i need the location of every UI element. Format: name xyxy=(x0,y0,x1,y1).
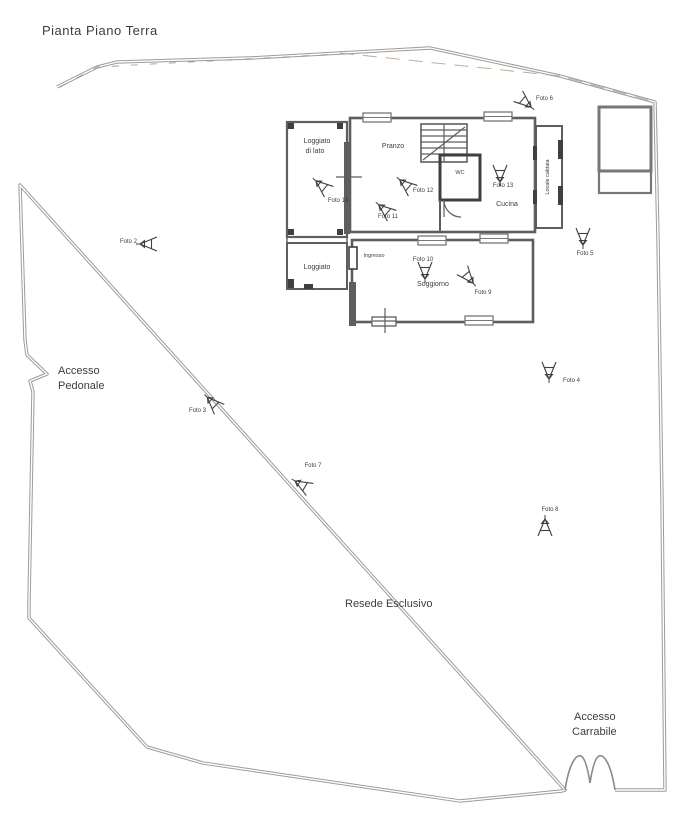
label-pranzo: Pranzo xyxy=(382,143,404,150)
window-icon xyxy=(418,236,446,245)
corner-mark xyxy=(288,229,294,235)
label-loggiato-di-lato2: di lato xyxy=(306,148,325,155)
window-dark-mark xyxy=(533,190,537,204)
label-wc: WC xyxy=(455,170,464,176)
camera-icon-foto8 xyxy=(538,515,552,536)
floor-plan-page: Pianta Piano Terra Loggiato di lato Pran… xyxy=(0,0,679,823)
label-foto7: Foto 7 xyxy=(304,463,322,469)
floor-plan-drawing: Pianta Piano Terra Loggiato di lato Pran… xyxy=(0,0,679,823)
window-icon xyxy=(363,113,391,122)
corner-mark xyxy=(337,123,343,129)
label-locale-caldaia: Locale caldaia xyxy=(545,158,551,194)
camera-icon-foto4 xyxy=(542,362,556,383)
label-accesso-pedonale2: Pedonale xyxy=(58,380,105,392)
camera-icon-foto2 xyxy=(136,237,157,251)
label-foto11: Foto 11 xyxy=(378,214,399,220)
label-resede-esclusivo: Resede Esclusivo xyxy=(345,598,432,610)
label-foto3: Foto 3 xyxy=(189,408,207,414)
boundary-inner-white xyxy=(20,48,665,801)
gate-arcs xyxy=(565,756,615,790)
area-labels: Accesso Pedonale Resede Esclusivo Access… xyxy=(58,365,617,738)
property-boundary xyxy=(20,48,665,801)
label-foto4: Foto 4 xyxy=(563,378,581,384)
window-icon xyxy=(480,234,508,243)
label-cucina: Cucina xyxy=(496,201,518,208)
outbuilding-upper xyxy=(599,107,651,171)
label-loggiato-di-lato: Loggiato xyxy=(304,138,331,145)
label-accesso-carrabile: Accesso xyxy=(574,711,616,723)
window-icon xyxy=(484,112,512,121)
page-title: Pianta Piano Terra xyxy=(42,23,158,38)
label-foto12: Foto 12 xyxy=(413,188,434,194)
label-loggiato: Loggiato xyxy=(304,264,331,271)
building-plan xyxy=(287,107,651,333)
camera-icon-foto7 xyxy=(288,473,313,496)
camera-icon-foto14 xyxy=(308,173,333,197)
photo-markers: Foto 2 Foto 14 Foto 12 Foto 11 Foto 13 F… xyxy=(120,91,594,536)
boundary-outline xyxy=(20,48,665,801)
corner-mark xyxy=(288,279,294,288)
door-arc xyxy=(444,200,461,217)
label-foto9: Foto 9 xyxy=(474,290,492,296)
entry-door xyxy=(349,247,357,269)
label-soggiorno: Soggiorno xyxy=(417,281,449,288)
outbuilding-lower xyxy=(599,171,651,193)
wall-thick-soggiorno-left xyxy=(349,282,356,326)
label-ingresso: Ingresso xyxy=(363,253,384,259)
corner-mark xyxy=(337,229,343,235)
label-foto5: Foto 5 xyxy=(576,251,594,257)
label-foto10: Foto 10 xyxy=(413,257,434,263)
window-dark-mark xyxy=(558,186,563,205)
corner-mark xyxy=(304,284,313,289)
window-dark-mark xyxy=(533,146,537,160)
camera-icon-foto10 xyxy=(418,262,432,283)
label-accesso-pedonale: Accesso xyxy=(58,365,100,377)
camera-icon-foto5 xyxy=(576,228,590,249)
corner-mark xyxy=(288,123,294,129)
label-foto2: Foto 2 xyxy=(120,239,138,245)
label-foto6: Foto 6 xyxy=(536,96,554,102)
label-foto13: Foto 13 xyxy=(493,183,514,189)
label-foto8: Foto 8 xyxy=(541,507,559,513)
window-icon xyxy=(465,316,493,325)
label-accesso-carrabile2: Carrabile xyxy=(572,726,617,738)
boundary-tan-tint xyxy=(340,53,655,102)
camera-icon-foto6 xyxy=(514,91,539,115)
window-dark-mark xyxy=(558,140,563,159)
label-foto14: Foto 14 xyxy=(328,198,349,204)
camera-icon-foto9 xyxy=(457,266,481,291)
